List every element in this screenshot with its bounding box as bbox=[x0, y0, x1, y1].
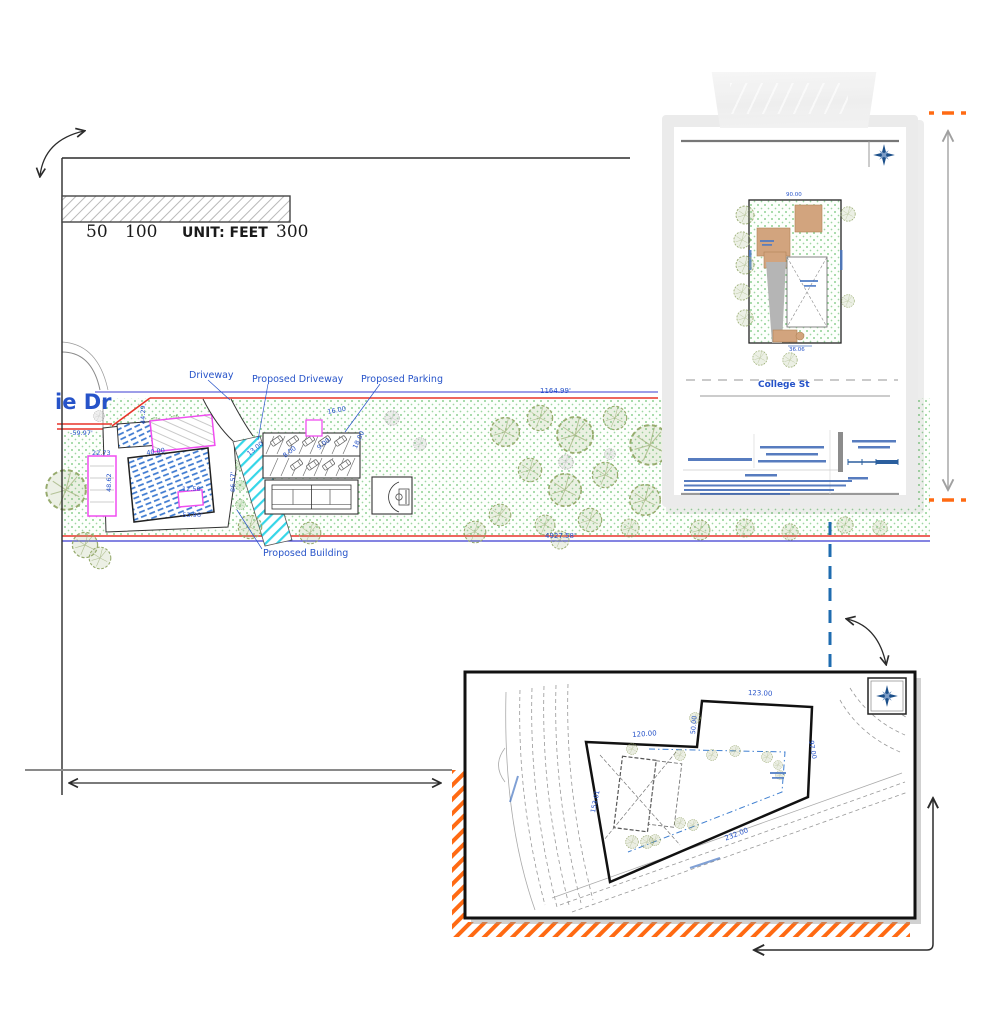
dim-label: 48.62 bbox=[106, 473, 113, 492]
scale-unit-label: UNIT: FEET bbox=[182, 226, 268, 240]
curved-arrow bbox=[847, 619, 886, 664]
scale-tick-300: 300 bbox=[276, 224, 308, 241]
dim-label: 1164.99' bbox=[540, 388, 571, 395]
scale-bar bbox=[62, 196, 290, 222]
moodboard-canvas: 50 100 UNIT: FEET 300 ie Dr Driveway Pro… bbox=[0, 0, 993, 1024]
street-label: ie Dr bbox=[55, 392, 112, 413]
tennis-court bbox=[265, 480, 358, 514]
dim-label: 4927.58' bbox=[545, 533, 576, 540]
dim-label: -59.97' bbox=[70, 430, 93, 437]
proposed-parking-label: Proposed Parking bbox=[361, 375, 443, 385]
proposed-building-label: Proposed Building bbox=[263, 549, 348, 559]
dim-label: 22.73 bbox=[92, 450, 111, 457]
washi-tape bbox=[710, 72, 878, 128]
inset-bottom-right bbox=[465, 672, 921, 924]
college-st-label: College St bbox=[758, 381, 810, 390]
proposed-driveway-label: Proposed Driveway bbox=[252, 375, 343, 385]
scale-tick-100: 100 bbox=[125, 224, 157, 241]
dim-label: 90.00 bbox=[786, 193, 802, 199]
dim-label: 86.57' bbox=[230, 472, 237, 492]
dim-label: 50.00 bbox=[690, 715, 698, 734]
inset-top-right bbox=[662, 115, 924, 514]
dim-label: 44.29 bbox=[140, 405, 147, 424]
orange-hatch-bottom bbox=[452, 922, 910, 937]
dim-label: -53.96' bbox=[180, 512, 203, 519]
dim-label: 12.50 bbox=[182, 486, 201, 493]
scale-tick-50: 50 bbox=[86, 224, 108, 241]
driveway-label: Driveway bbox=[189, 371, 234, 381]
site-plan-collage-graphics bbox=[0, 0, 993, 1024]
basketball-court bbox=[372, 477, 412, 514]
dim-label: 123.00 bbox=[748, 690, 773, 698]
dim-label: 36.06 bbox=[789, 348, 805, 354]
